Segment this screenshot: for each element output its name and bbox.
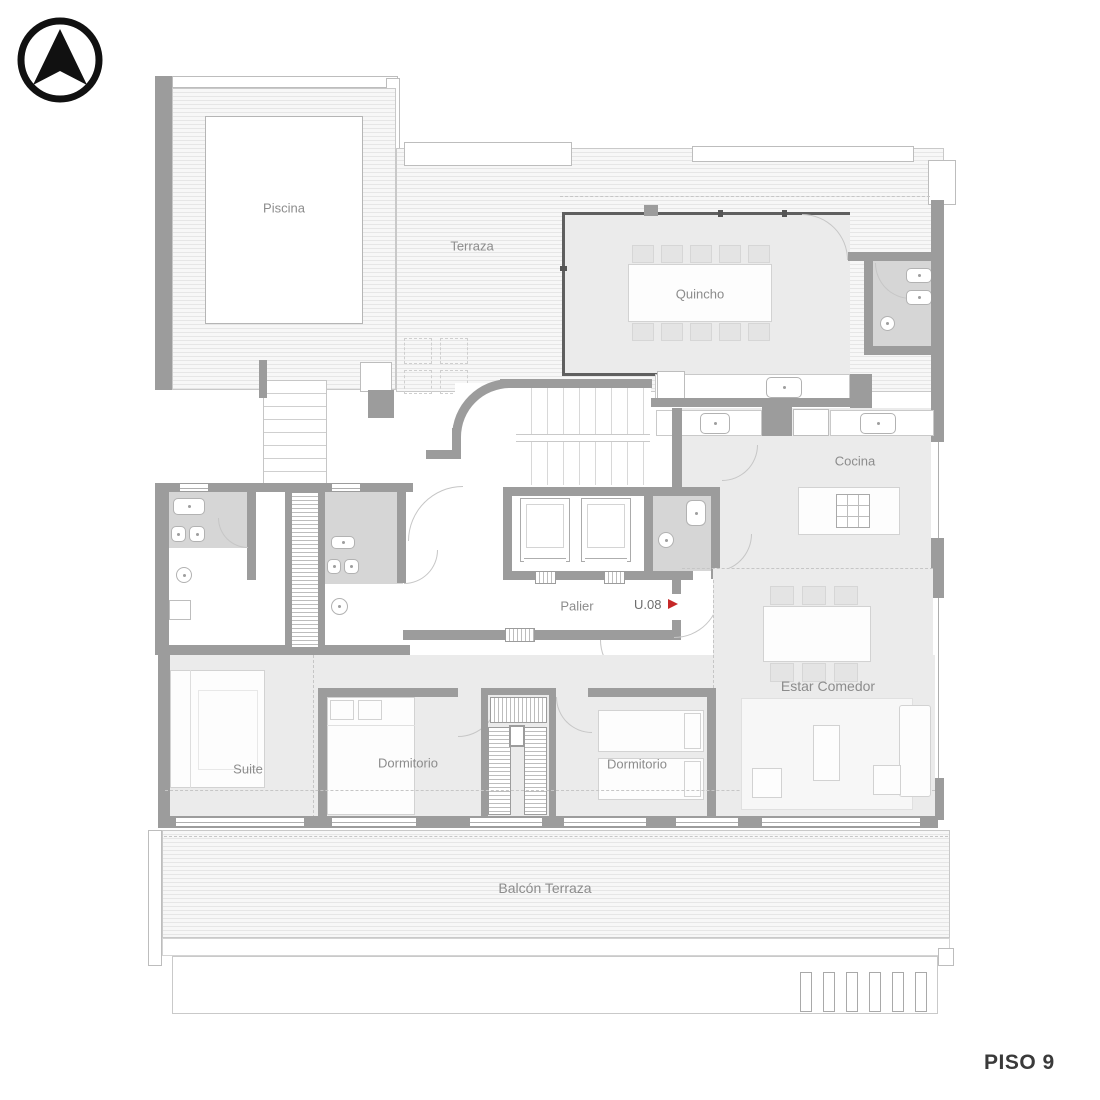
planter-outline xyxy=(404,338,432,364)
chair xyxy=(690,323,712,341)
bidet-icon xyxy=(189,526,205,542)
north-arrow-icon xyxy=(14,14,106,106)
wall xyxy=(400,630,505,640)
slat xyxy=(915,972,927,1012)
chair xyxy=(770,586,794,605)
elevator-cab xyxy=(526,504,564,548)
coffee-table xyxy=(813,725,840,781)
room-label-balcon: Balcón Terraza xyxy=(498,880,591,896)
toilet-icon xyxy=(906,268,932,283)
wall xyxy=(644,487,653,580)
planter-outline xyxy=(440,338,468,364)
shower-drain-icon xyxy=(176,567,192,583)
floor-title: PISO 9 xyxy=(984,1051,1055,1075)
bathtub-icon xyxy=(173,498,205,515)
window xyxy=(934,442,941,538)
appliance xyxy=(793,409,829,436)
sink-icon xyxy=(700,413,730,434)
wall xyxy=(247,492,256,580)
bed-blanket xyxy=(198,690,258,770)
boundary-dashed-line xyxy=(164,836,948,837)
dining-table xyxy=(763,606,871,662)
planter-outline xyxy=(404,370,432,394)
mullion xyxy=(560,266,567,271)
slat xyxy=(869,972,881,1012)
wall xyxy=(426,450,461,459)
sliding-door xyxy=(762,818,920,826)
wall xyxy=(318,688,327,818)
parapet xyxy=(404,142,572,166)
shower-drain-icon xyxy=(331,598,348,615)
bathtub-icon xyxy=(331,536,355,549)
pillow xyxy=(684,713,701,749)
room-label-dormitorio-2: Dormitorio xyxy=(607,757,667,772)
window xyxy=(676,818,738,826)
wall xyxy=(653,487,720,496)
wall xyxy=(850,374,872,408)
toilet-icon xyxy=(327,559,341,574)
wall xyxy=(368,390,394,418)
slat xyxy=(823,972,835,1012)
wall xyxy=(285,492,291,648)
wall xyxy=(707,688,716,820)
duct xyxy=(509,725,525,747)
cabinet xyxy=(169,600,191,620)
chair xyxy=(719,245,741,263)
mullion xyxy=(782,210,787,217)
wall xyxy=(648,398,872,407)
stair-landing xyxy=(516,434,650,442)
window xyxy=(934,598,941,778)
slat xyxy=(846,972,858,1012)
window xyxy=(176,818,304,826)
parapet xyxy=(928,160,956,205)
shower-drain-icon xyxy=(880,316,895,331)
wall xyxy=(588,688,714,697)
bidet-icon xyxy=(906,290,932,305)
chair xyxy=(690,245,712,263)
wall xyxy=(535,630,645,640)
room-label-estar: Estar Comedor xyxy=(781,678,875,694)
parapet xyxy=(172,76,398,88)
boundary-dashed-line xyxy=(560,196,930,197)
chair xyxy=(661,245,683,263)
room-label-terraza: Terraza xyxy=(450,239,493,254)
shaft xyxy=(490,697,547,723)
bed-blanket xyxy=(327,725,415,726)
appliance xyxy=(657,371,685,399)
room-label-cocina: Cocina xyxy=(835,454,875,469)
window xyxy=(332,818,416,826)
mullion xyxy=(718,210,723,217)
door-arc xyxy=(404,550,438,584)
parapet xyxy=(148,830,162,966)
door-sill xyxy=(604,571,625,584)
sofa xyxy=(899,705,931,797)
wall xyxy=(672,408,682,488)
chair xyxy=(834,586,858,605)
window xyxy=(332,484,360,491)
wall xyxy=(864,252,873,355)
room-label-palier: Palier xyxy=(560,599,593,614)
wall xyxy=(762,407,792,436)
wall xyxy=(155,76,172,390)
chair xyxy=(748,323,770,341)
door-arc xyxy=(408,486,463,541)
slat xyxy=(892,972,904,1012)
pouf xyxy=(752,768,782,798)
elevator-door xyxy=(585,554,627,562)
wall xyxy=(931,200,944,350)
wall xyxy=(848,252,944,261)
pillow xyxy=(330,700,354,720)
sink-icon xyxy=(860,413,896,434)
pool xyxy=(205,116,363,324)
stairs xyxy=(263,380,327,486)
pillow xyxy=(684,761,701,797)
chair xyxy=(632,245,654,263)
pillow xyxy=(358,700,382,720)
door-sill xyxy=(535,571,556,584)
elevator-cab xyxy=(587,504,625,548)
wall xyxy=(644,205,658,216)
wall xyxy=(556,571,604,580)
wall xyxy=(259,360,267,398)
window xyxy=(180,484,208,491)
toilet-icon xyxy=(686,500,706,526)
wall xyxy=(155,483,169,655)
parapet xyxy=(938,948,954,966)
glass-wall xyxy=(562,373,657,376)
window xyxy=(564,818,646,826)
wall xyxy=(155,645,410,655)
chair xyxy=(661,323,683,341)
room-label-dormitorio-1: Dormitorio xyxy=(378,756,438,771)
chair xyxy=(632,323,654,341)
room-label-quincho: Quincho xyxy=(676,287,724,302)
chair xyxy=(719,323,741,341)
wall xyxy=(549,688,556,818)
room-label-piscina: Piscina xyxy=(263,201,305,216)
chair xyxy=(802,586,826,605)
wall xyxy=(503,571,535,580)
wall xyxy=(500,379,652,388)
unit-label: U.08 xyxy=(634,597,661,612)
boundary-dashed-line xyxy=(713,580,714,688)
parapet xyxy=(692,146,914,162)
landing xyxy=(360,362,392,392)
shaft xyxy=(488,727,511,815)
room-label-suite: Suite xyxy=(233,762,263,777)
sofa-chaise xyxy=(873,765,901,795)
wall xyxy=(503,487,653,496)
balcony-edge xyxy=(162,938,950,956)
boundary-dashed-line xyxy=(682,568,933,569)
shower-drain-icon xyxy=(658,532,674,548)
slat xyxy=(800,972,812,1012)
cooktop-icon xyxy=(836,494,870,528)
elevator-door xyxy=(524,554,566,562)
wall xyxy=(158,648,170,818)
toilet-icon xyxy=(171,526,186,542)
window xyxy=(470,818,542,826)
wall xyxy=(503,487,512,580)
door-sill xyxy=(505,628,535,642)
boundary-dashed-line xyxy=(313,655,314,818)
wall xyxy=(481,688,556,695)
shaft xyxy=(524,727,547,815)
shaft xyxy=(291,492,319,648)
wall xyxy=(625,571,653,580)
wall xyxy=(640,630,672,640)
sink-icon xyxy=(766,377,802,398)
chair xyxy=(748,245,770,263)
wall xyxy=(481,688,488,818)
floor-plan: Piscina Terraza Quincho xyxy=(0,0,1100,1100)
red-right-arrow-icon xyxy=(668,599,678,609)
wall xyxy=(318,688,458,697)
bed-pillow-line xyxy=(190,670,191,788)
bidet-icon xyxy=(344,559,359,574)
